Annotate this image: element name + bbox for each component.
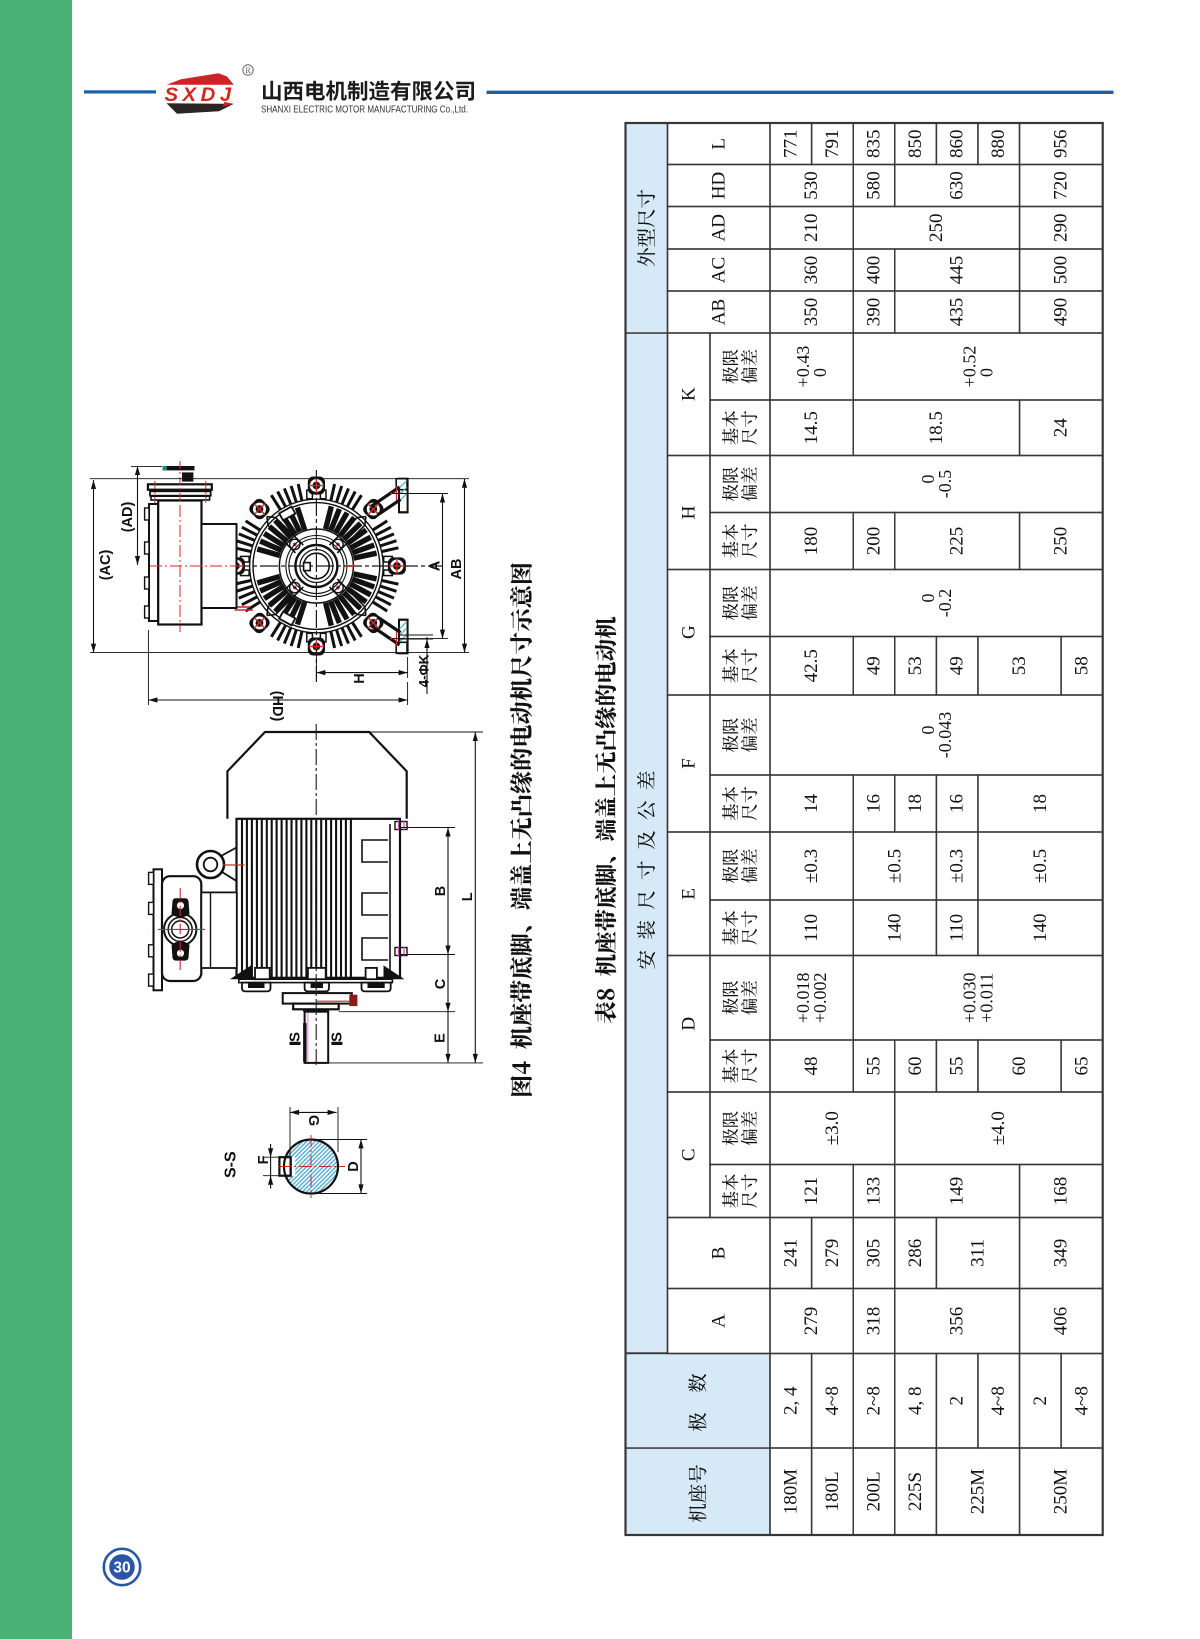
svg-text:318: 318 — [864, 1307, 885, 1336]
svg-text:4, 8: 4, 8 — [905, 1387, 926, 1416]
svg-text:L: L — [460, 892, 476, 901]
svg-text:49: 49 — [864, 656, 885, 675]
svg-text:42.5: 42.5 — [801, 649, 822, 682]
svg-text:956: 956 — [1051, 130, 1072, 159]
svg-text:225: 225 — [947, 527, 968, 556]
svg-text:D: D — [346, 1161, 362, 1171]
svg-text:580: 580 — [864, 171, 885, 200]
svg-text:SXDJ: SXDJ — [164, 84, 235, 106]
svg-text:B: B — [708, 1247, 729, 1260]
svg-text:55: 55 — [864, 1057, 885, 1076]
svg-text:±0.5: ±0.5 — [884, 849, 905, 883]
svg-text:279: 279 — [822, 1239, 843, 1268]
svg-text:250: 250 — [1051, 527, 1072, 556]
svg-text:771: 771 — [780, 130, 801, 159]
svg-text:S: S — [329, 1032, 346, 1042]
svg-text:0: 0 — [810, 368, 830, 377]
svg-text:55: 55 — [947, 1057, 968, 1076]
svg-text:530: 530 — [801, 171, 822, 200]
svg-text:133: 133 — [864, 1177, 885, 1206]
svg-text:-0.5: -0.5 — [935, 470, 955, 499]
svg-text:G: G — [678, 625, 699, 639]
svg-text:149: 149 — [947, 1177, 968, 1206]
svg-text:880: 880 — [988, 130, 1009, 159]
svg-text:-0.043: -0.043 — [935, 712, 955, 759]
svg-text:(AC): (AC) — [98, 550, 114, 581]
svg-text:±3.0: ±3.0 — [822, 1111, 843, 1145]
svg-text:250M: 250M — [1051, 1469, 1072, 1515]
svg-text:835: 835 — [864, 130, 885, 159]
svg-text:225S: 225S — [905, 1472, 926, 1511]
svg-text:121: 121 — [801, 1177, 822, 1206]
svg-text:720: 720 — [1051, 171, 1072, 200]
svg-text:AB: AB — [708, 299, 729, 325]
svg-text:AB: AB — [449, 559, 465, 580]
svg-text:435: 435 — [947, 298, 968, 327]
svg-text:E: E — [433, 1033, 449, 1043]
svg-text:250: 250 — [926, 214, 947, 243]
svg-text:-0.2: -0.2 — [935, 589, 955, 618]
svg-text:18: 18 — [1030, 794, 1051, 813]
svg-text:490: 490 — [1051, 298, 1072, 327]
svg-text:311: 311 — [967, 1239, 988, 1267]
svg-text:4-ΦK: 4-ΦK — [417, 654, 432, 687]
svg-text:4~8: 4~8 — [988, 1386, 1009, 1415]
svg-text:49: 49 — [947, 656, 968, 675]
svg-text:AD: AD — [708, 214, 729, 241]
svg-text:500: 500 — [1051, 256, 1072, 285]
svg-text:350: 350 — [801, 298, 822, 327]
svg-text:±0.3: ±0.3 — [947, 849, 968, 883]
svg-text:F: F — [256, 1155, 272, 1164]
svg-text:2, 4: 2, 4 — [780, 1386, 801, 1415]
svg-text:+0.011: +0.011 — [976, 973, 996, 1023]
svg-text:E: E — [678, 888, 699, 900]
svg-text:110: 110 — [947, 914, 968, 942]
svg-text:850: 850 — [905, 130, 926, 159]
svg-text:±0.5: ±0.5 — [1030, 849, 1051, 883]
svg-text:140: 140 — [884, 914, 905, 943]
svg-text:4~8: 4~8 — [1071, 1386, 1092, 1415]
svg-text:65: 65 — [1071, 1057, 1092, 1076]
svg-text:791: 791 — [822, 130, 843, 159]
svg-text:G: G — [305, 1115, 321, 1126]
svg-text:2~8: 2~8 — [864, 1386, 885, 1415]
svg-text:140: 140 — [1030, 914, 1051, 943]
svg-text:48: 48 — [801, 1057, 822, 1076]
svg-text:AC: AC — [708, 257, 729, 283]
svg-text:(AD): (AD) — [120, 502, 136, 533]
svg-text:349: 349 — [1051, 1239, 1072, 1268]
svg-text:+0.002: +0.002 — [810, 972, 830, 1023]
svg-text:58: 58 — [1071, 656, 1092, 675]
svg-text:A: A — [708, 1314, 729, 1328]
svg-text:16: 16 — [947, 794, 968, 813]
svg-text:53: 53 — [1009, 656, 1030, 675]
svg-text:279: 279 — [801, 1307, 822, 1336]
svg-text:4~8: 4~8 — [822, 1386, 843, 1415]
svg-text:110: 110 — [801, 914, 822, 942]
svg-text:HD: HD — [708, 172, 729, 199]
svg-text:180L: 180L — [822, 1471, 843, 1511]
svg-text:406: 406 — [1051, 1307, 1072, 1336]
svg-text:R: R — [245, 66, 251, 75]
svg-text:60: 60 — [905, 1057, 926, 1076]
svg-text:D: D — [678, 1017, 699, 1031]
svg-text:L: L — [708, 138, 729, 150]
svg-text:2: 2 — [947, 1396, 968, 1406]
svg-text:S: S — [287, 1032, 304, 1042]
svg-text:SHANXI ELECTRIC MOTOR MANUFACT: SHANXI ELECTRIC MOTOR MANUFACTURING Co.,… — [261, 104, 468, 115]
svg-text:C: C — [433, 978, 449, 989]
svg-text:+0.52: +0.52 — [959, 346, 979, 388]
svg-text:241: 241 — [780, 1239, 801, 1268]
svg-text:390: 390 — [864, 298, 885, 327]
svg-text:200: 200 — [864, 527, 885, 556]
svg-text:S-S: S-S — [223, 1151, 240, 1178]
svg-text:180M: 180M — [780, 1469, 801, 1515]
svg-text:286: 286 — [905, 1239, 926, 1268]
svg-text:225M: 225M — [967, 1469, 988, 1515]
svg-text:+0.43: +0.43 — [793, 346, 813, 388]
svg-text:18: 18 — [905, 794, 926, 813]
svg-text:±4.0: ±4.0 — [988, 1111, 1009, 1145]
svg-text:305: 305 — [864, 1239, 885, 1268]
svg-text:2: 2 — [1030, 1396, 1051, 1406]
svg-text:290: 290 — [1051, 214, 1072, 243]
svg-text:860: 860 — [947, 130, 968, 159]
svg-text:C: C — [678, 1148, 699, 1161]
svg-text:24: 24 — [1051, 418, 1072, 438]
svg-text:400: 400 — [864, 256, 885, 285]
svg-text:H: H — [352, 673, 368, 683]
svg-text:200L: 200L — [864, 1471, 885, 1511]
svg-text:F: F — [678, 758, 699, 769]
svg-text:16: 16 — [864, 794, 885, 813]
svg-text:360: 360 — [801, 256, 822, 285]
svg-text:630: 630 — [947, 171, 968, 200]
svg-text:18.5: 18.5 — [926, 411, 947, 444]
svg-text:445: 445 — [947, 256, 968, 285]
svg-text:168: 168 — [1051, 1177, 1072, 1206]
svg-text:14: 14 — [801, 794, 822, 814]
svg-text:210: 210 — [801, 214, 822, 243]
svg-text:±0.3: ±0.3 — [801, 849, 822, 883]
svg-text:30: 30 — [113, 1559, 130, 1576]
svg-text:B: B — [433, 886, 449, 896]
svg-text:53: 53 — [905, 656, 926, 675]
svg-text:A: A — [428, 560, 444, 571]
svg-text:0: 0 — [976, 368, 996, 377]
svg-text:60: 60 — [1009, 1057, 1030, 1076]
svg-text:K: K — [678, 387, 699, 401]
svg-text:14.5: 14.5 — [801, 411, 822, 444]
svg-text:H: H — [678, 505, 699, 519]
svg-text:356: 356 — [947, 1307, 968, 1336]
svg-text:(HD): (HD) — [269, 691, 285, 722]
svg-text:180: 180 — [801, 527, 822, 556]
